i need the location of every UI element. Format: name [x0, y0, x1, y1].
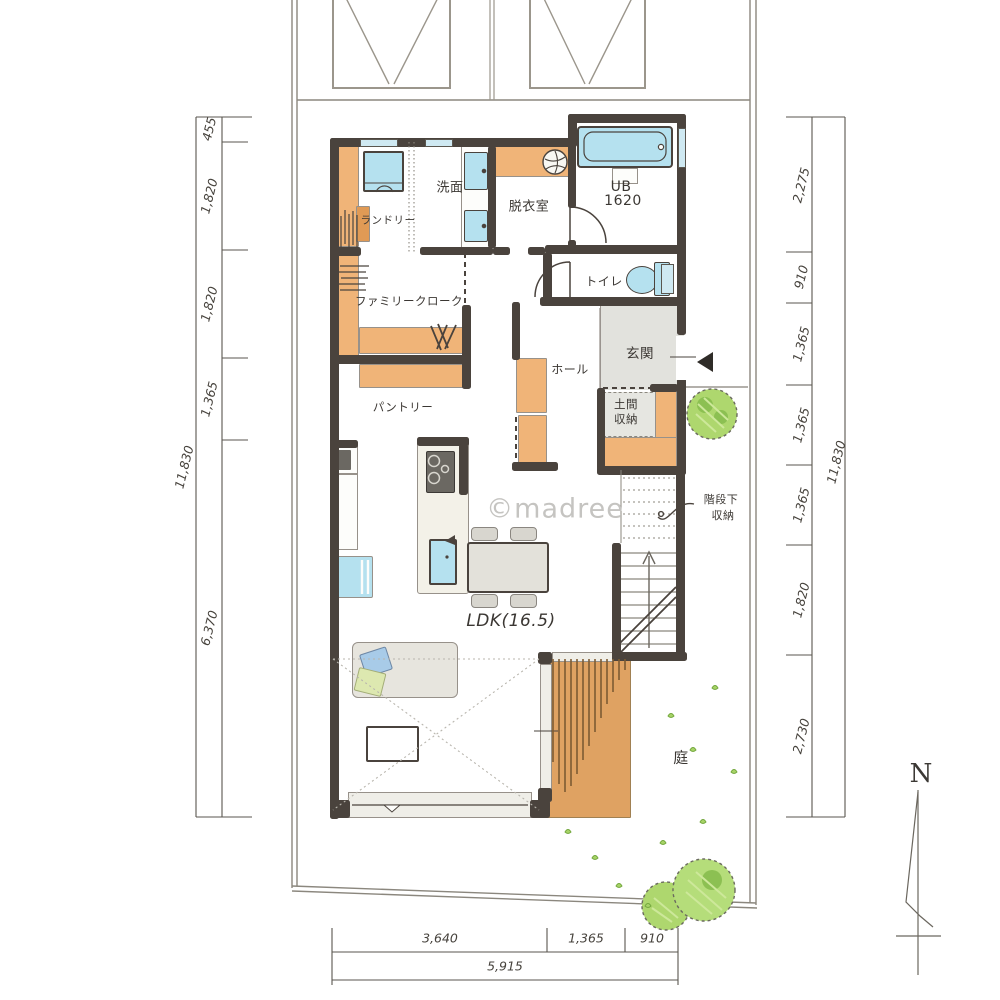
dim-right-5: 1,820 — [789, 581, 812, 619]
wall-east-below-entry — [677, 378, 686, 475]
washroom-sink-lower — [464, 210, 488, 242]
label-dressing-room: 脱衣室 — [509, 196, 550, 215]
watermark: ©madree — [486, 494, 624, 525]
wall-bath-dressing — [568, 122, 576, 208]
north-label: N — [910, 759, 933, 789]
wall-stair-south — [612, 652, 687, 661]
under-stair-storage-hatch — [621, 470, 675, 543]
wall-toilet-bottom — [540, 297, 686, 306]
stair-break-lines — [616, 587, 676, 657]
label-under-stair-1: 階段下 — [704, 491, 739, 507]
bath-window — [678, 128, 686, 168]
label-doma-storage-2: 収納 — [614, 411, 638, 427]
wall-bath-dressing-stub — [568, 240, 576, 253]
dim-right-2: 1,365 — [789, 325, 812, 363]
dining-chair-3 — [471, 594, 498, 608]
south-sliding-window — [348, 792, 532, 818]
wall-washroom-dressing — [488, 146, 496, 248]
dim-right-total: 11,830 — [823, 439, 848, 485]
toilet-window — [661, 264, 674, 294]
kitchen-sink — [429, 539, 457, 585]
floor-plan: ランドリー 洗面 脱衣室 UB 1620 トイレ ファミリークローク ホール 玄… — [0, 0, 1000, 1000]
wall-deck-corner-north — [538, 652, 552, 664]
wall-dressing-bottom-left — [493, 247, 510, 255]
wall-doma-top — [650, 384, 678, 392]
wall-doma-bottom — [597, 466, 686, 475]
label-garden: 庭 — [673, 747, 689, 768]
wall-deck-corner-south — [538, 788, 552, 802]
wall-toilet-west — [543, 253, 552, 306]
toilet-door-arc — [535, 262, 570, 297]
wall-south-corner-west — [330, 800, 350, 818]
label-entrance: 玄関 — [626, 342, 654, 362]
label-bath-size: 1620 — [604, 193, 642, 209]
stair-up-arrow — [643, 552, 655, 648]
wall-washroom-bottom — [420, 247, 493, 255]
dim-right-0: 2,275 — [789, 166, 812, 204]
laundry-washing-machine — [363, 151, 404, 192]
dim-left-3: 1,365 — [197, 380, 220, 418]
tree-by-entrance — [687, 389, 737, 439]
hall-closet-upper — [516, 358, 547, 413]
label-under-stair-2: 収納 — [712, 507, 735, 523]
garden-bush-large — [673, 859, 735, 921]
wall-north-bath — [568, 114, 686, 123]
dim-left-total: 11,830 — [171, 444, 196, 490]
wall-hall-closet-bottom — [512, 462, 558, 471]
entrance-door-opening — [676, 336, 687, 380]
living-low-table — [366, 726, 419, 762]
dressing-room-counter — [488, 146, 570, 177]
wall-cabinet-cap — [330, 440, 358, 448]
dim-right-6: 2,730 — [789, 717, 812, 755]
label-doma-storage-1: 土間 — [614, 396, 638, 412]
hall-closet-lower — [518, 415, 547, 466]
dining-deck-door — [552, 652, 614, 662]
wall-west-exterior — [330, 138, 339, 819]
bath-door-arc — [570, 207, 606, 243]
label-laundry: ランドリー — [361, 213, 416, 228]
label-toilet: トイレ — [585, 273, 623, 290]
entrance-arrow-icon — [697, 352, 713, 372]
bathtub — [577, 126, 673, 168]
label-washroom: 洗面 — [436, 177, 463, 196]
wall-hall-closet-west — [512, 302, 520, 360]
ldk-bay-window-bench — [333, 556, 373, 598]
wall-pantry-east — [462, 305, 471, 389]
dim-left-0: 455 — [199, 116, 219, 143]
label-family-closet: ファミリークローク — [355, 293, 463, 309]
wall-kitchen-cap-right — [459, 444, 468, 495]
wall-dressing-bottom-right — [528, 247, 545, 255]
label-ldk: LDK(16.5) — [466, 611, 555, 631]
laundry-washroom-curtain-line — [409, 142, 414, 252]
dim-left-1: 1,820 — [197, 177, 220, 215]
wall-stair-east — [676, 467, 685, 661]
dining-table — [467, 542, 549, 593]
dim-bottom-2: 910 — [640, 931, 664, 946]
doma-storage-shelf-bottom — [603, 437, 677, 467]
wall-doma-west — [597, 388, 605, 470]
dining-chair-2 — [510, 527, 537, 541]
dim-right-4: 1,365 — [789, 486, 812, 524]
wall-toilet-top — [545, 245, 686, 254]
dim-bottom-1: 1,365 — [568, 931, 604, 946]
dimension-lines-left — [196, 117, 252, 817]
wall-laundry-bottom — [330, 247, 361, 256]
garden-bush-small — [642, 882, 690, 930]
dim-left-4: 6,370 — [197, 609, 220, 647]
dim-right-1: 910 — [791, 264, 811, 291]
stair-treads — [621, 553, 676, 644]
family-closet-bottom-wardrobe — [359, 327, 463, 354]
dining-chair-1 — [471, 527, 498, 541]
north-arrow — [896, 790, 941, 975]
washroom-window — [425, 139, 453, 147]
washroom-sink-upper — [464, 152, 488, 190]
dim-left-2: 1,820 — [197, 285, 220, 323]
wall-closet-pantry-divider — [330, 355, 470, 364]
wood-deck — [547, 656, 631, 818]
laundry-window — [360, 139, 398, 147]
dining-chair-4 — [510, 594, 537, 608]
dim-bottom-0: 3,640 — [422, 931, 458, 946]
wall-south-corner-east — [530, 800, 550, 818]
refrigerator-door-front — [337, 450, 351, 470]
dim-right-3: 1,365 — [789, 406, 812, 444]
pantry-shelf — [359, 364, 463, 388]
gas-stove — [426, 451, 455, 493]
east-sliding-door-to-deck — [540, 664, 552, 790]
dim-bottom-total: 5,915 — [487, 959, 523, 974]
wall-stair-west — [612, 543, 621, 661]
parking-space-markings — [333, 0, 645, 100]
dimension-lines-bottom — [332, 928, 678, 985]
label-pantry: パントリー — [373, 399, 434, 415]
label-hall: ホール — [551, 361, 589, 378]
